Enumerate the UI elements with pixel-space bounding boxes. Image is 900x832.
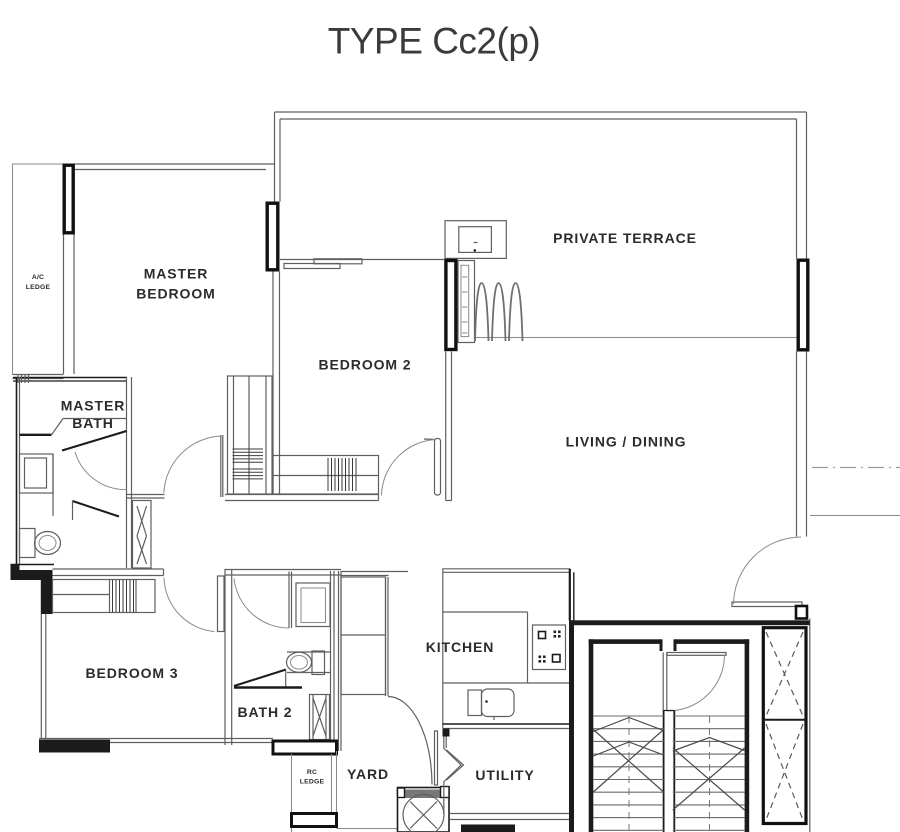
svg-text:BATH 2: BATH 2 xyxy=(238,704,293,720)
svg-text:LEDGE: LEDGE xyxy=(300,779,325,786)
svg-text:PRIVATE TERRACE: PRIVATE TERRACE xyxy=(553,230,697,246)
svg-text:A/C: A/C xyxy=(32,274,44,281)
svg-text:YARD: YARD xyxy=(347,766,389,782)
svg-text:TYPE Cc2(p): TYPE Cc2(p) xyxy=(328,21,540,62)
svg-text:LIVING / DINING: LIVING / DINING xyxy=(566,434,687,450)
svg-text:BEDROOM: BEDROOM xyxy=(136,286,215,302)
svg-text:BEDROOM 2: BEDROOM 2 xyxy=(319,357,412,373)
svg-text:MASTER: MASTER xyxy=(61,398,126,414)
svg-text:LEDGE: LEDGE xyxy=(26,284,51,291)
svg-text:BEDROOM 3: BEDROOM 3 xyxy=(86,665,179,681)
svg-text:UTILITY: UTILITY xyxy=(475,767,534,783)
svg-text:BATH: BATH xyxy=(72,415,113,431)
svg-text:KITCHEN: KITCHEN xyxy=(426,639,495,655)
svg-text:RC: RC xyxy=(307,769,317,776)
svg-text:MASTER: MASTER xyxy=(144,266,209,282)
